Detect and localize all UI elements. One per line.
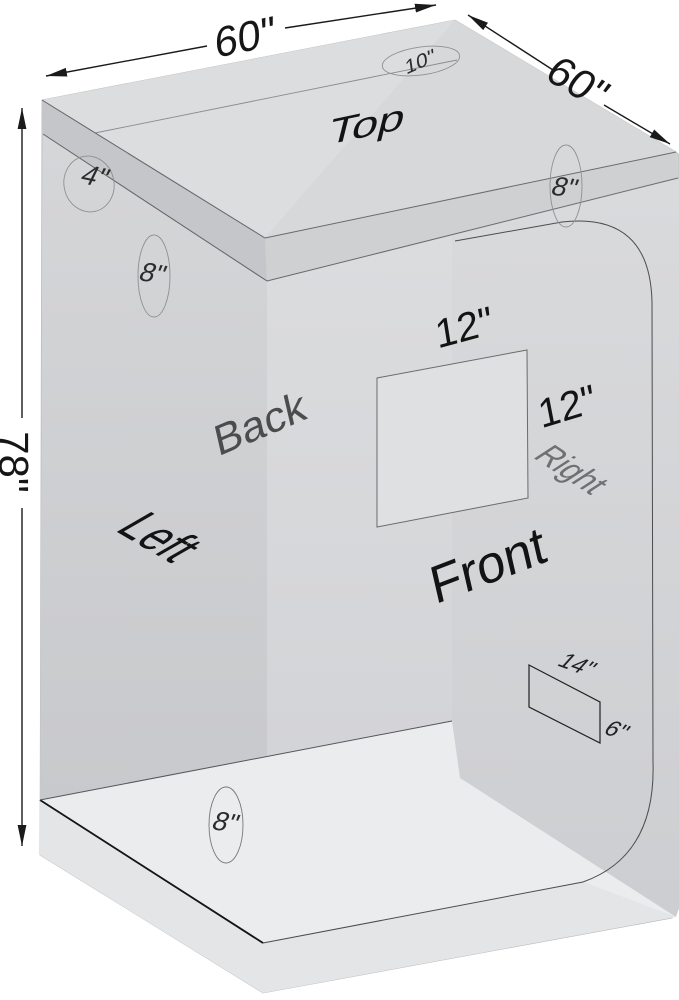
height-dimension-label: 78" xyxy=(0,431,38,493)
tent-diagram-svg: 60" 60" 78" Top Back Left Front Right 12… xyxy=(0,0,679,1000)
dimension-diagram: 60" 60" 78" Top Back Left Front Right 12… xyxy=(0,0,679,1000)
window-cutout xyxy=(377,350,528,527)
